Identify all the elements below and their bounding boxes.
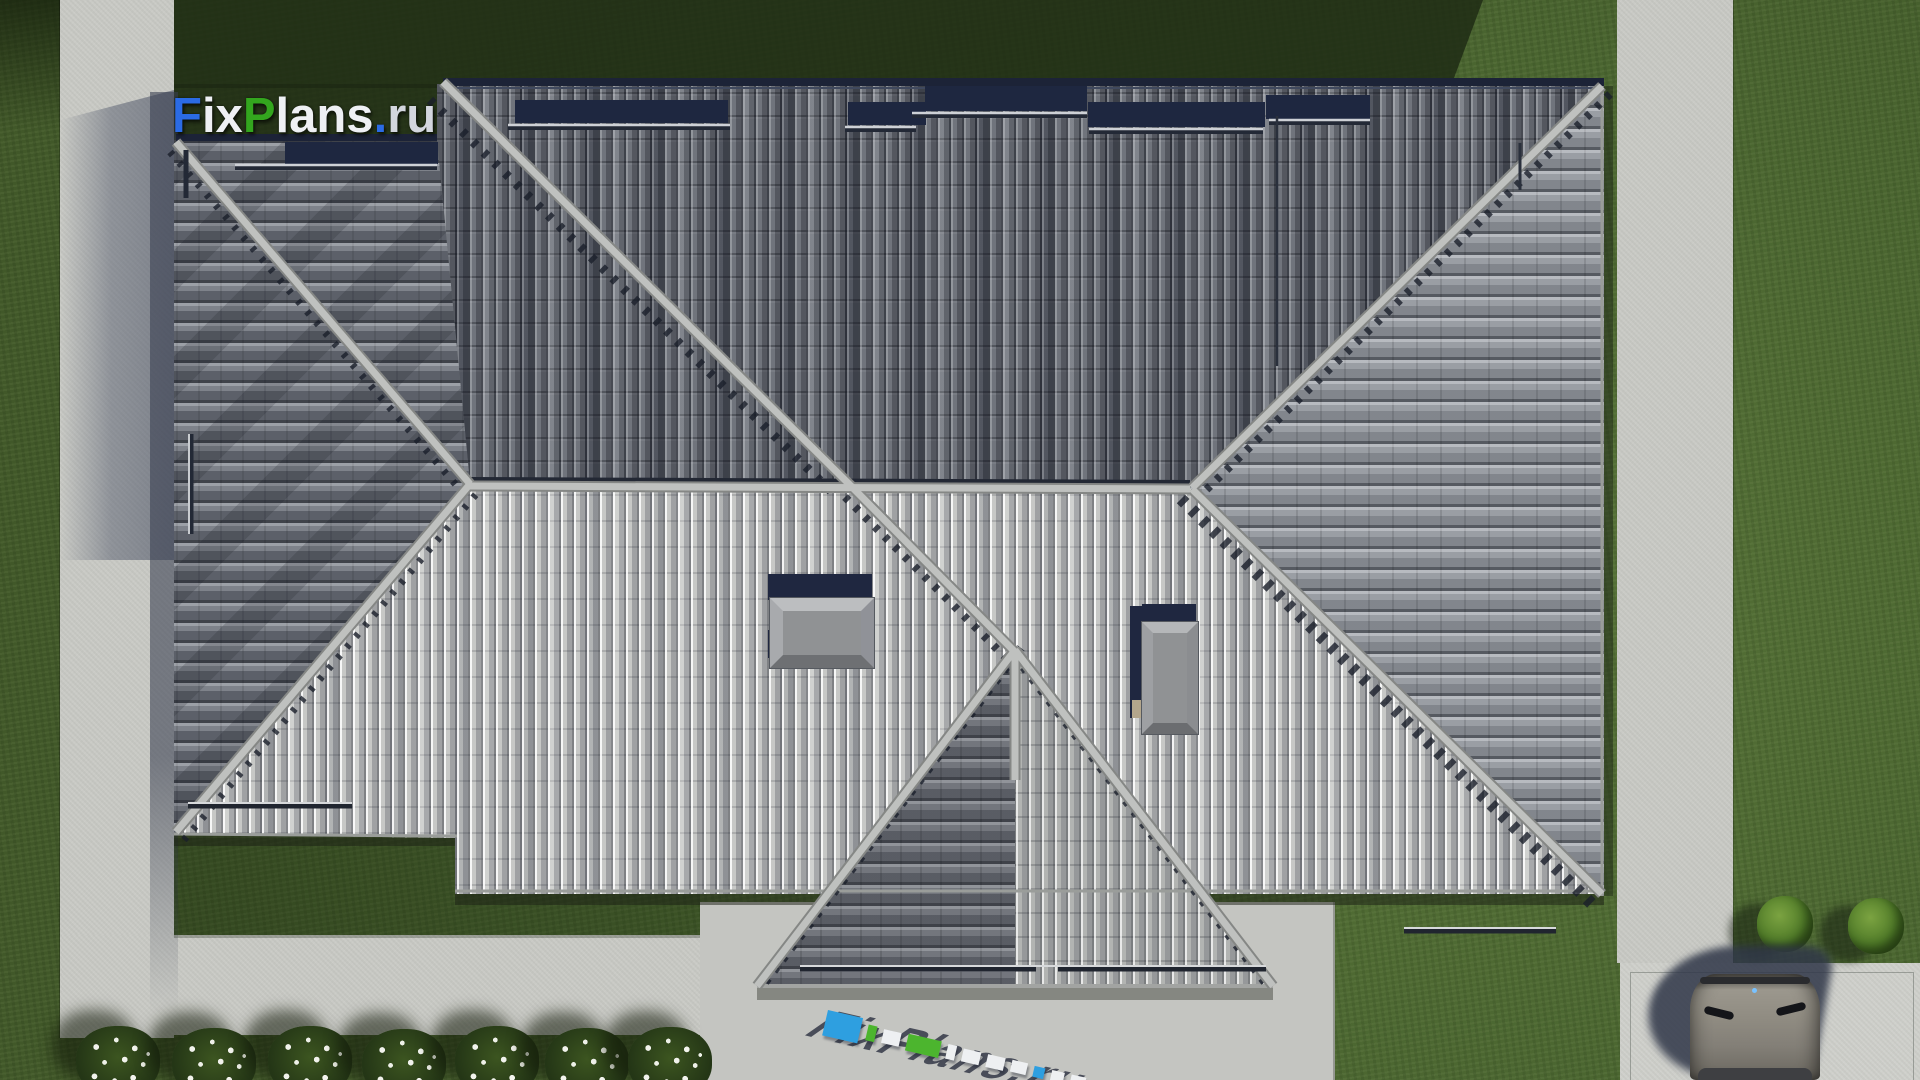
hip-cap-se: [1192, 489, 1602, 894]
gable-left-cap: [757, 650, 1015, 986]
gable-ridge-link-cap: [852, 487, 1015, 652]
hip-cap-nw-main: [443, 82, 852, 487]
aerial-house-render: FixPlans.ru FixPlans.ru: [0, 0, 1920, 1080]
logo-block-P: [905, 1033, 942, 1057]
logo-letters-ru: ru: [387, 89, 436, 143]
hip-cap-ne: [1192, 86, 1602, 488]
logo-letter-p: P: [243, 89, 276, 143]
logo-watermark: FixPlans.ru: [172, 88, 436, 144]
logo-letter-f: F: [172, 89, 202, 143]
navy-eave-band-top: [443, 78, 1604, 86]
skylight-navy-trim: [1142, 604, 1196, 622]
logo-block-r: [1050, 1069, 1065, 1080]
skylight-box-tall: [1142, 622, 1198, 734]
navy-tile-segment: [1266, 95, 1370, 119]
navy-tile-segment: [515, 100, 728, 123]
navy-tile-segment: [925, 86, 1087, 111]
hip-cap-wing-nw: [176, 142, 470, 484]
navy-tile-segment-wing: [285, 142, 438, 164]
logo-letters-lans: lans: [276, 89, 374, 143]
logo-letters-ix: ix: [202, 89, 243, 143]
logo-block-n: [985, 1054, 1005, 1071]
logo-block-l: [945, 1043, 957, 1060]
skylight-navy-trim: [768, 574, 872, 600]
cap-under-edges: [176, 82, 1602, 986]
wing-eave-line: [174, 834, 457, 836]
logo-block-x: [881, 1029, 902, 1047]
roof-linework: [0, 0, 1920, 1080]
skylight-base-trim: [1132, 700, 1142, 718]
logo-block-i: [865, 1025, 877, 1043]
logo-dot: .: [374, 89, 388, 143]
ridge-caps: [176, 82, 1602, 986]
navy-tile-segment: [1088, 102, 1265, 127]
logo-block-a: [961, 1048, 981, 1065]
main-ridge-cap: [470, 486, 1190, 489]
logo-block-s: [1010, 1060, 1028, 1075]
hip-cap-wing-sw: [176, 484, 470, 832]
logo-block-u: [1069, 1074, 1086, 1080]
skylight-box-wide: [770, 598, 874, 668]
hip-step-shadows: [170, 94, 1610, 982]
logo-block-dot: [1032, 1065, 1045, 1078]
